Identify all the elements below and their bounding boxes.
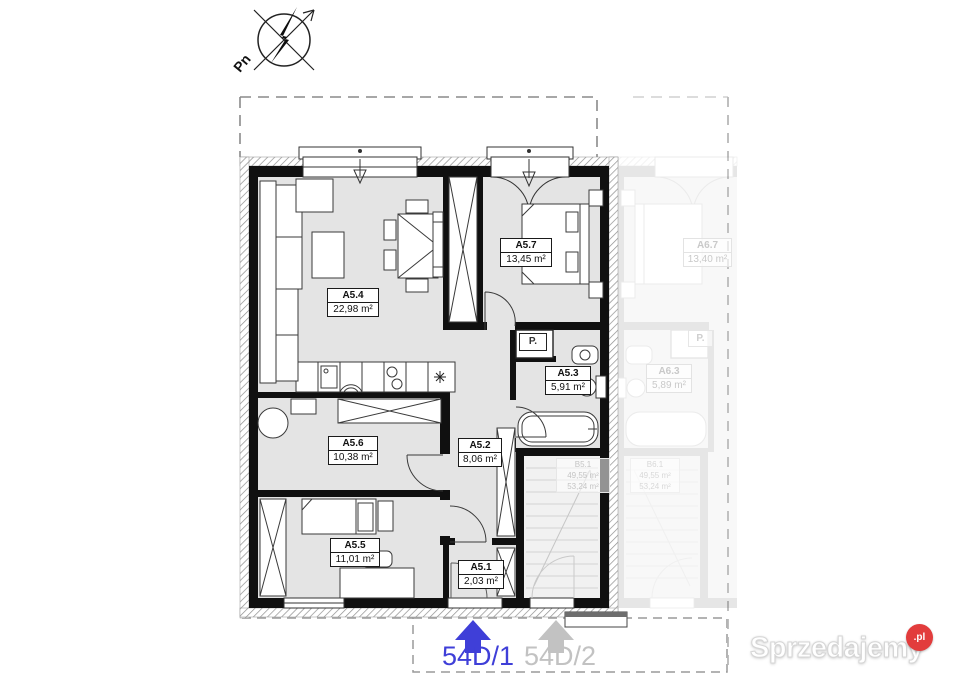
stair-label-b6-1: B6.1 49,55 m² 53,24 m² — [630, 458, 680, 493]
room-label-a5-3: A5.3 5,91 m² — [545, 366, 591, 395]
room-label-a6-3: A6.3 5,89 m² — [646, 364, 692, 393]
stair-label-b5-1: B5.1 49,55 m² 53,24 m² — [556, 458, 610, 493]
room-label-a5-4: A5.4 22,98 m² — [327, 288, 379, 317]
room-label-a5-2: A5.2 8,06 m² — [458, 438, 502, 467]
floor-plan: Pn A5.4 22,98 m² A5.7 13,45 m² A5.3 5,91… — [0, 0, 960, 678]
watermark: Sprzedajemy .pl — [750, 630, 935, 674]
watermark-tld-badge: .pl — [906, 624, 933, 651]
room-label-a6-7: A6.7 13,40 m² — [683, 238, 732, 267]
watermark-wordmark: Sprzedajemy — [750, 632, 923, 665]
compass — [254, 7, 314, 70]
unit-label-54d-1[interactable]: 54D/1 — [436, 642, 520, 671]
room-label-a5-7: A5.7 13,45 m² — [500, 238, 552, 267]
closet-label: P. — [519, 333, 547, 351]
ghost-closet-label: P. — [688, 330, 713, 347]
room-label-a5-6: A5.6 10,38 m² — [328, 436, 378, 465]
room-label-a5-1: A5.1 2,03 m² — [458, 560, 504, 589]
room-label-a5-5: A5.5 11,01 m² — [330, 538, 380, 567]
unit-label-54d-2[interactable]: 54D/2 — [518, 642, 602, 671]
